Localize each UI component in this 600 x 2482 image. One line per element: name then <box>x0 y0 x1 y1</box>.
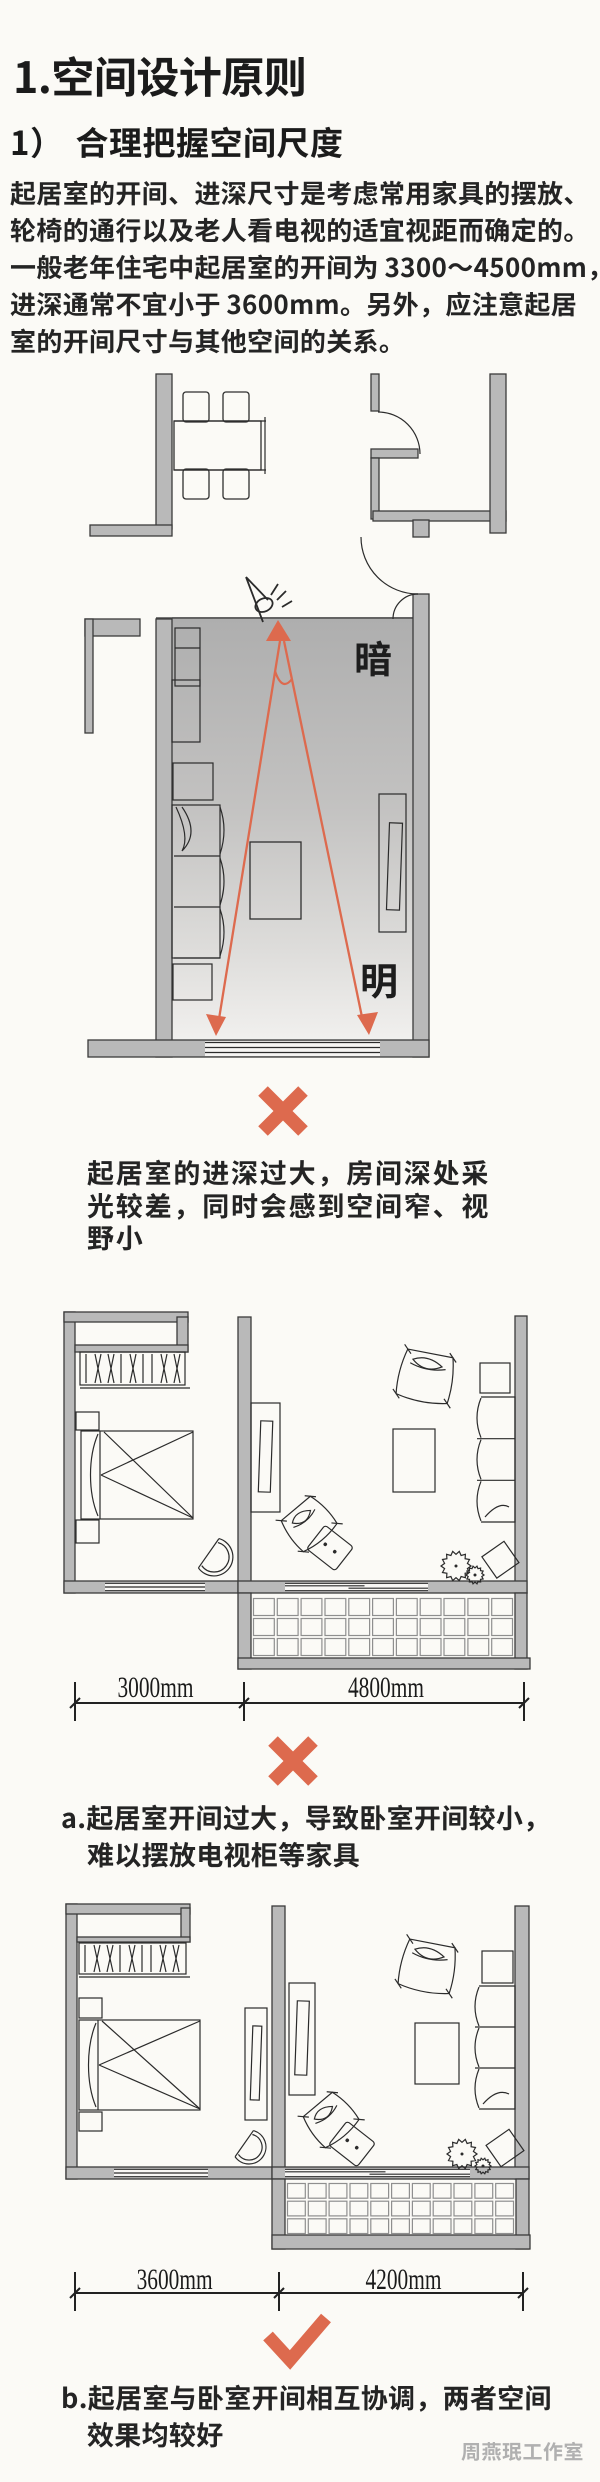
svg-text:3600mm: 3600mm <box>137 2263 213 2296</box>
svg-text:3000mm: 3000mm <box>118 1671 194 1704</box>
svg-text:暗: 暗 <box>354 629 392 684</box>
svg-text:4200mm: 4200mm <box>366 2263 442 2296</box>
svg-text:4800mm: 4800mm <box>348 1671 424 1704</box>
svg-text:明: 明 <box>360 951 398 1006</box>
